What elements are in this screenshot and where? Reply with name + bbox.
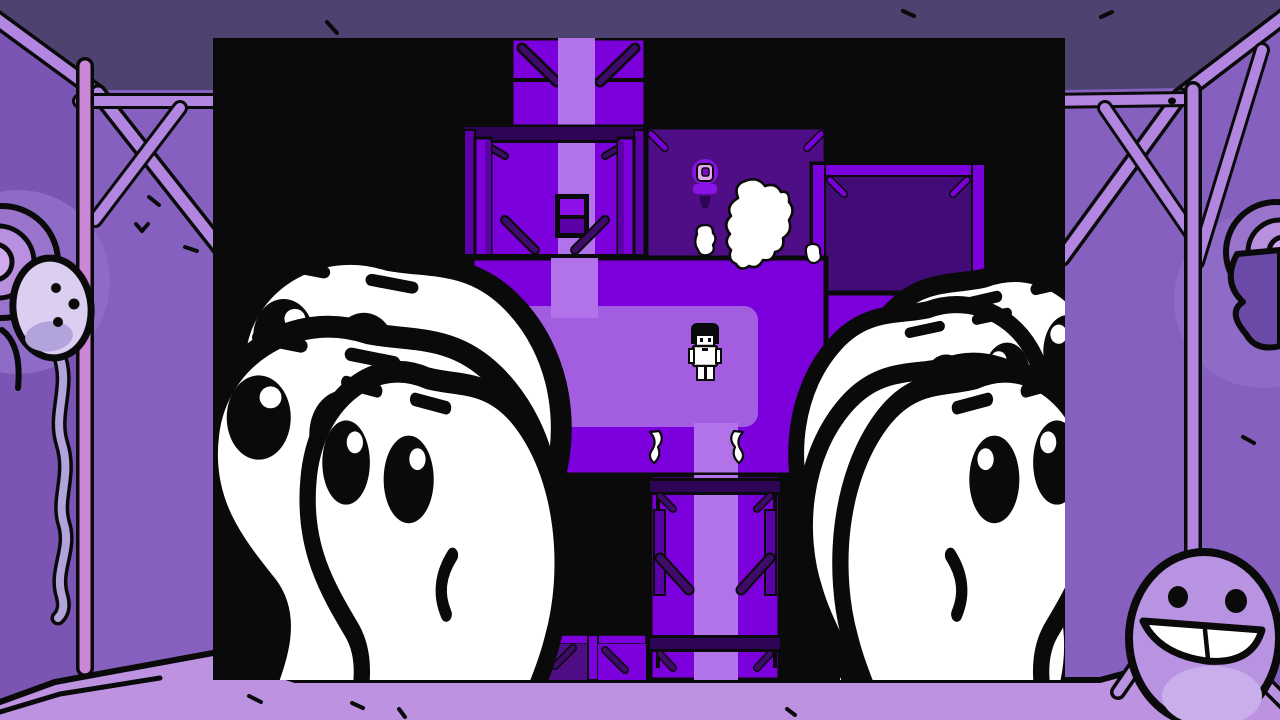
- south-bridge: [650, 475, 780, 680]
- tadpole-eye: [53, 317, 63, 327]
- blob-eye: [1225, 589, 1247, 613]
- game-map: [213, 38, 1065, 680]
- game-screen: [0, 0, 1280, 720]
- game-viewport[interactable]: [213, 38, 1065, 680]
- ghost-cloud: [806, 244, 821, 263]
- ghost-cloud: [695, 225, 715, 256]
- beam-knot: [1168, 98, 1176, 105]
- tadpole-eye: [51, 283, 61, 293]
- blob-eye: [1168, 586, 1188, 608]
- top-tower: [511, 38, 646, 130]
- upper-left-room: [464, 127, 646, 258]
- ghost[interactable]: [308, 372, 563, 680]
- ghost[interactable]: [840, 372, 1065, 680]
- tadpole-eye: [69, 299, 80, 310]
